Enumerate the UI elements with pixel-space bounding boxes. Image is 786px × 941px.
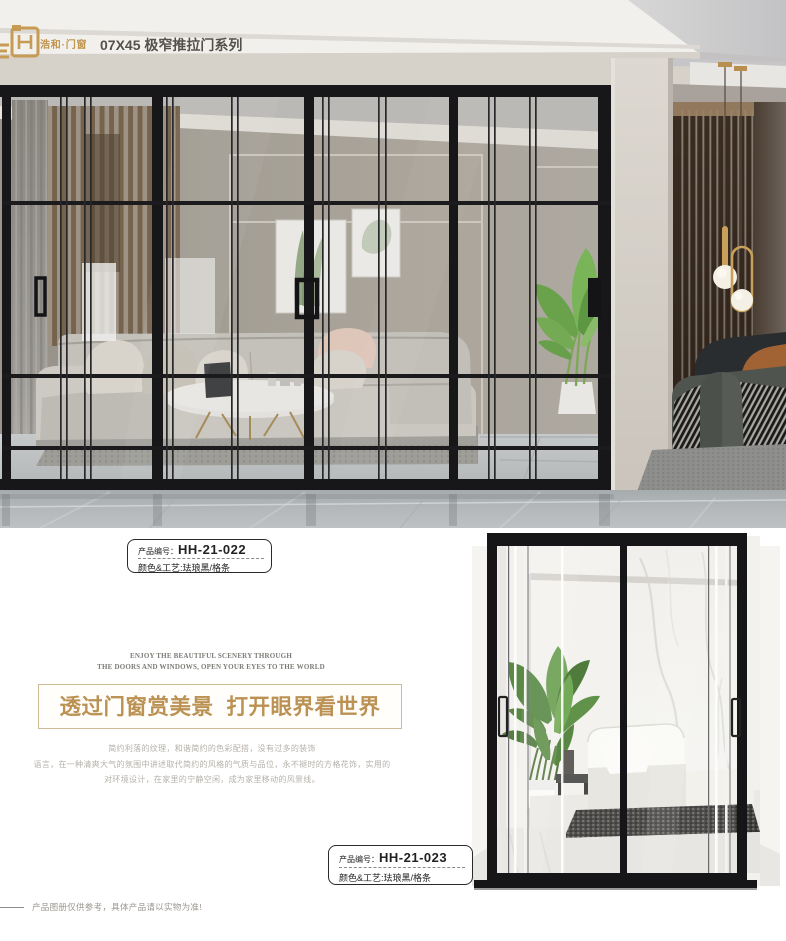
svg-text:浩和·门窗: 浩和·门窗 xyxy=(40,38,87,51)
svg-text:07X45 极窄推拉门系列: 07X45 极窄推拉门系列 xyxy=(100,37,242,53)
